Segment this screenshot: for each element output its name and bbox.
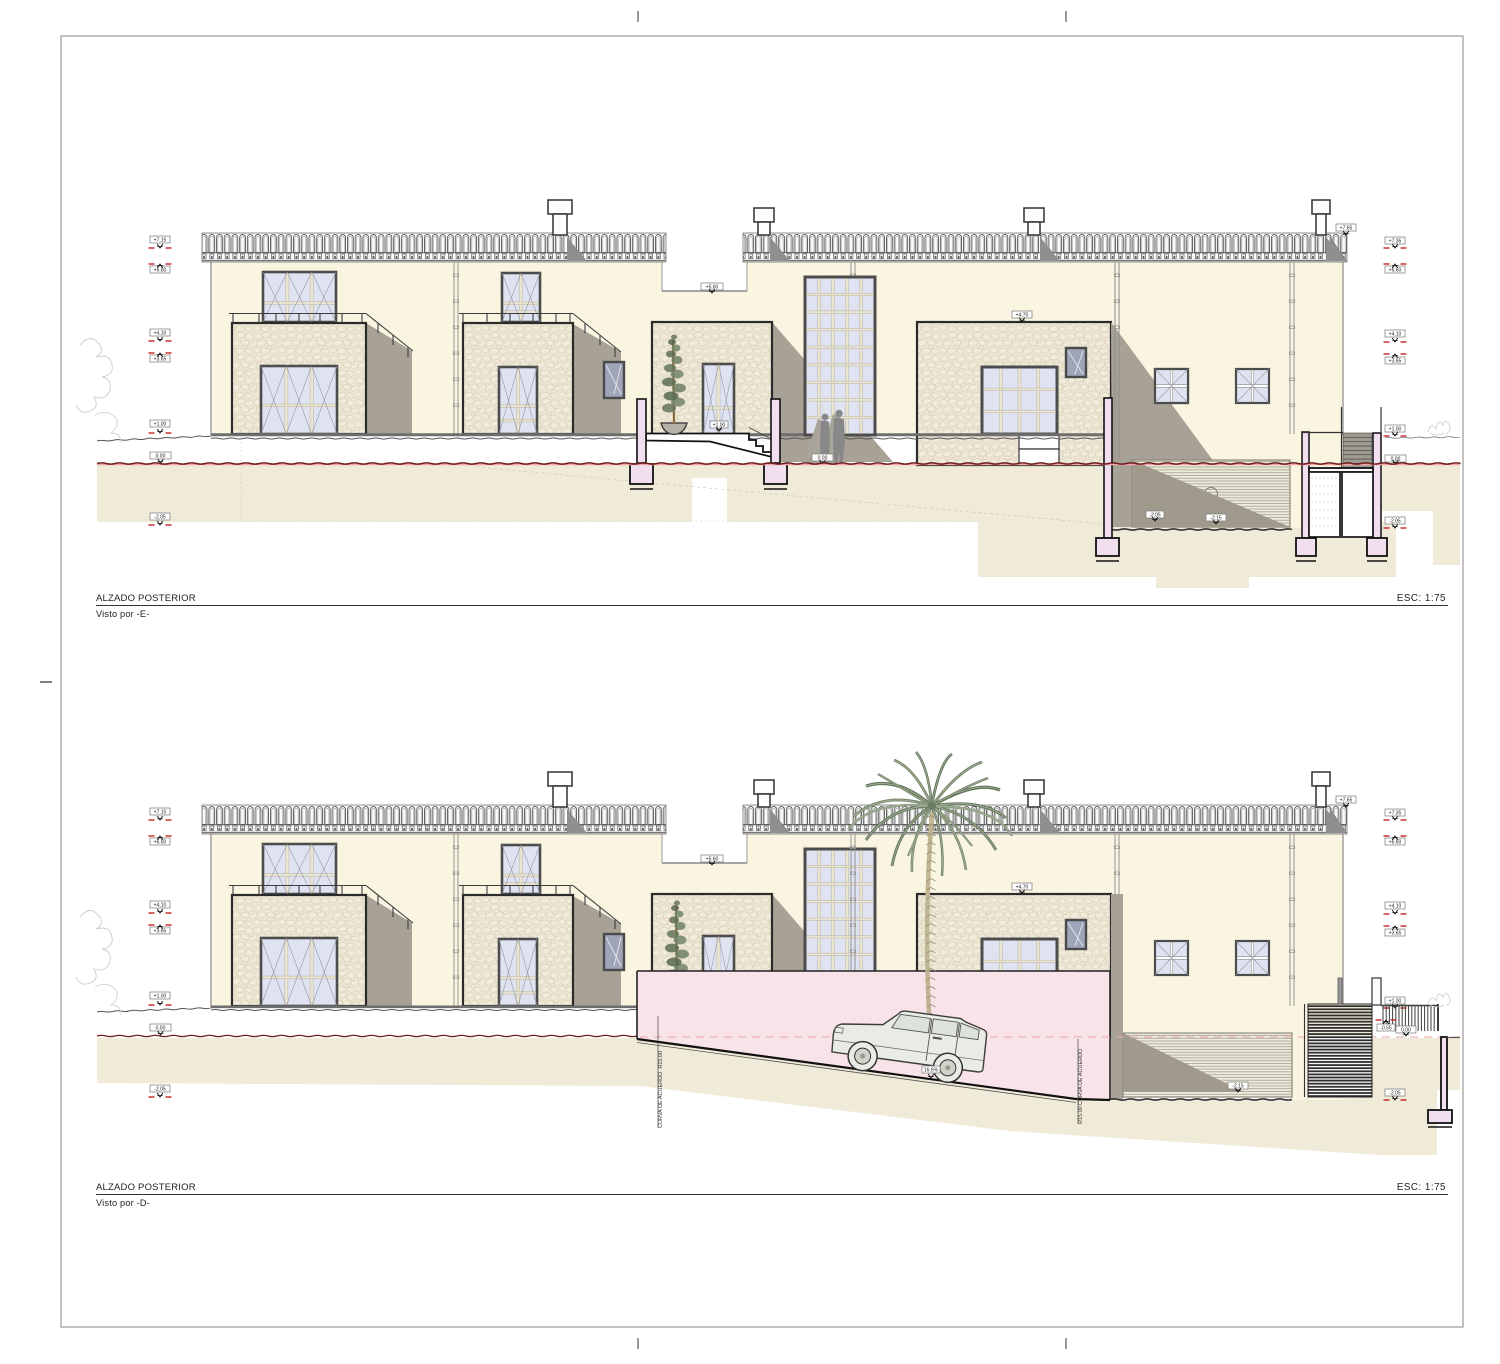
svg-text:-2.05: -2.05 (1389, 519, 1401, 525)
svg-text:ESC: 1:75: ESC: 1:75 (1397, 593, 1446, 604)
svg-text:+3.65: +3.65 (1389, 359, 1402, 365)
svg-text:0.00: 0.00 (156, 454, 166, 460)
svg-text:-0.55: -0.55 (1380, 1026, 1392, 1032)
svg-text:0.00: 0.00 (1401, 1028, 1411, 1034)
svg-text:ALZADO POSTERIOR: ALZADO POSTERIOR (96, 1182, 196, 1193)
svg-text:+4.10: +4.10 (154, 331, 167, 337)
svg-text:Visto por -E-: Visto por -E- (96, 609, 150, 619)
svg-text:ALZADO POSTERIOR: ALZADO POSTERIOR (96, 593, 196, 604)
svg-text:+1.00: +1.00 (713, 423, 726, 429)
svg-text:0.00: 0.00 (818, 456, 828, 462)
svg-text:+6.60: +6.60 (1389, 268, 1402, 274)
svg-text:R15.00: R15.00 (1078, 1106, 1084, 1124)
svg-text:-2.15: -2.15 (1232, 1084, 1244, 1090)
svg-text:+7.35: +7.35 (1389, 239, 1402, 245)
svg-text:+3.65: +3.65 (154, 357, 167, 363)
svg-text:16.6%: 16.6% (924, 1068, 939, 1074)
svg-text:+7.65: +7.65 (1340, 226, 1353, 232)
svg-text:-2.15: -2.15 (1210, 516, 1222, 522)
svg-text:CURVA DE ACUERDO: CURVA DE ACUERDO (1078, 1048, 1084, 1105)
svg-text:+7.15: +7.15 (154, 238, 167, 244)
svg-text:0.00: 0.00 (1391, 457, 1401, 463)
svg-text:Visto por -D-: Visto por -D- (96, 1198, 150, 1208)
svg-text:+4.10: +4.10 (1389, 332, 1402, 338)
svg-text:-2.05: -2.05 (154, 515, 166, 521)
svg-text:+1.00: +1.00 (154, 422, 167, 428)
svg-text:-2.05: -2.05 (1149, 513, 1161, 519)
svg-text:+1.00: +1.00 (1389, 427, 1402, 433)
svg-text:+6.60: +6.60 (154, 268, 167, 274)
svg-text:ESC: 1:75: ESC: 1:75 (1397, 1182, 1446, 1193)
svg-text:+4.70: +4.70 (1016, 313, 1029, 319)
svg-text:CURVA DE ACUERDO R15.00: CURVA DE ACUERDO R15.00 (658, 1051, 664, 1128)
svg-text:+5.60: +5.60 (706, 285, 719, 291)
